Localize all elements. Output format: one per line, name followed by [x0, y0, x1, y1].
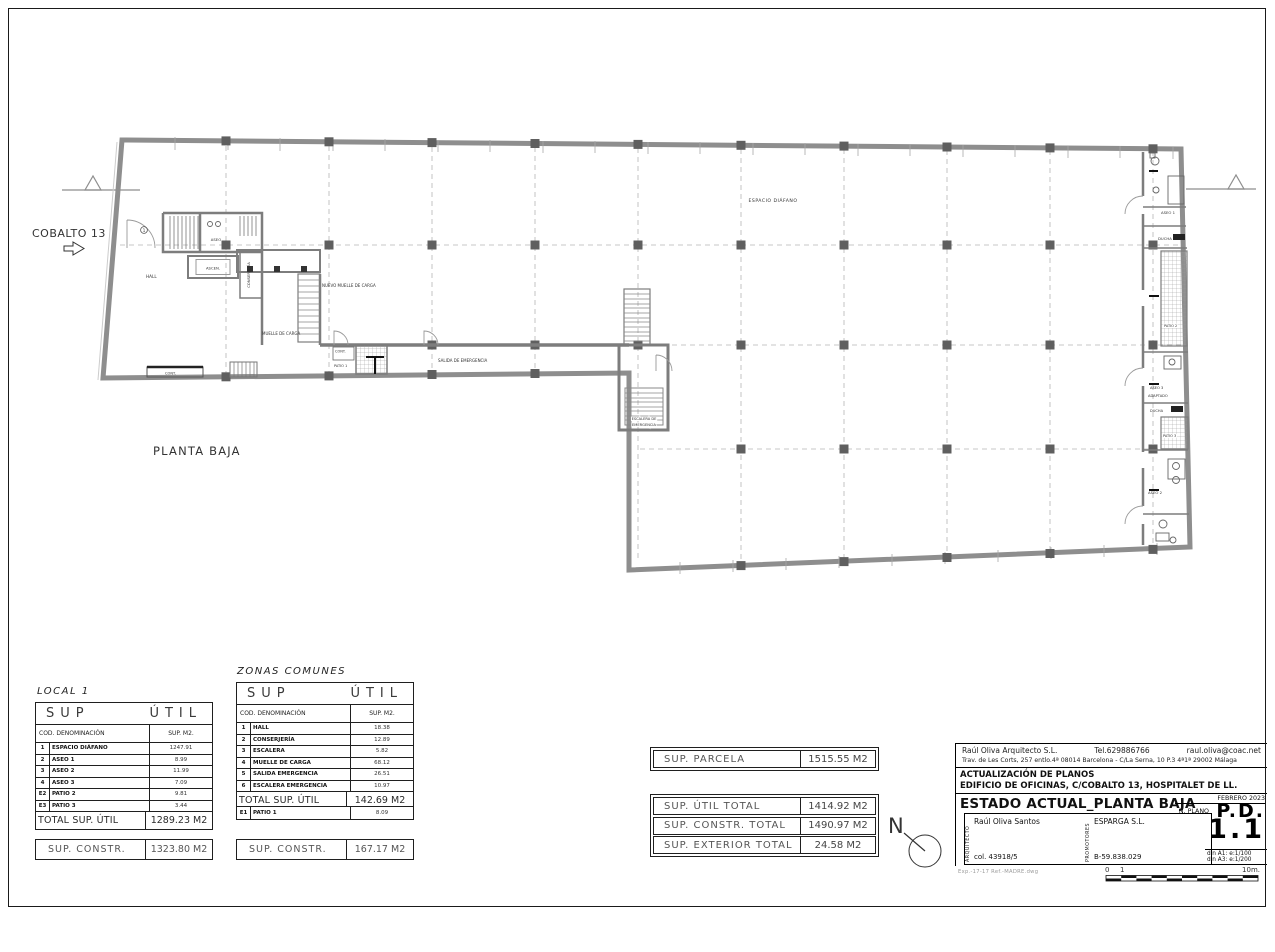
sheet-frame — [8, 8, 1266, 907]
